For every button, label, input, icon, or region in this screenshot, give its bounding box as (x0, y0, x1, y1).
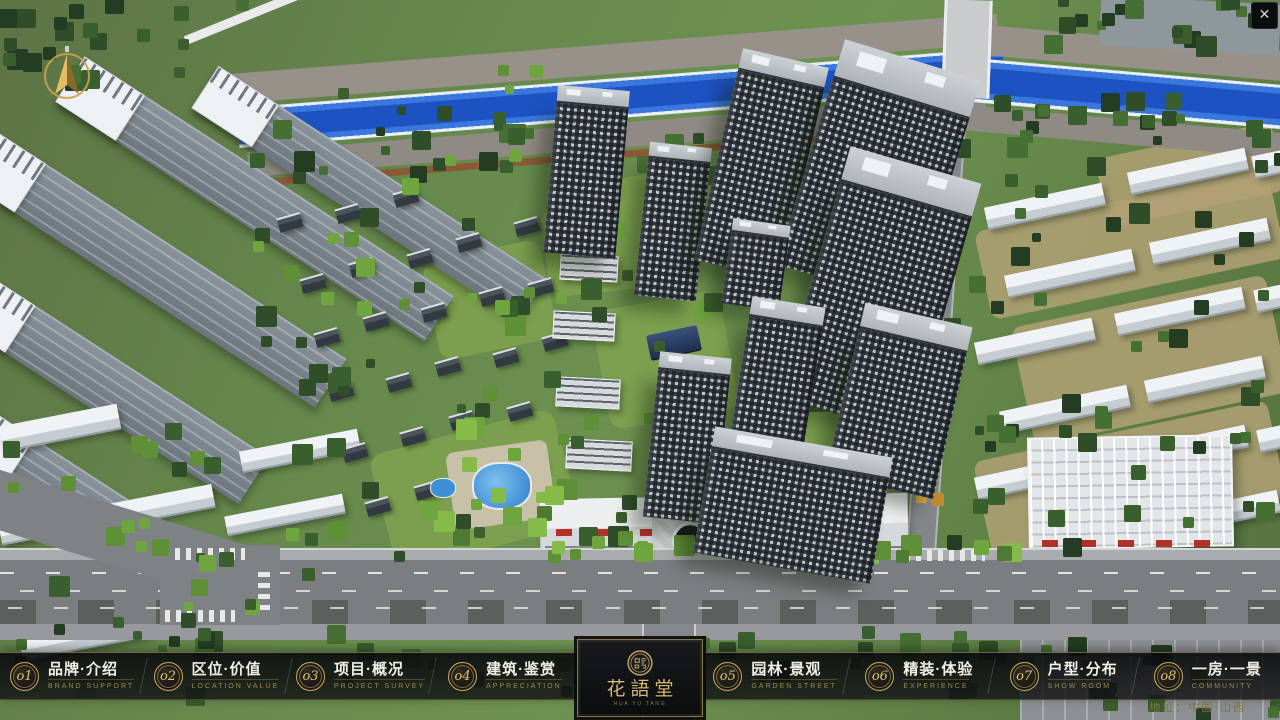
awning (598, 529, 614, 536)
awning (1194, 540, 1210, 547)
nav-label-en: BRAND SUPPORT (48, 679, 134, 691)
mid-rise (552, 310, 615, 341)
nav-group-right: o5 园林·景观 GARDEN STREET o6 精装·体验 EXPERIEN… (703, 653, 1280, 699)
address-text: 地址：中国·山西 (1149, 699, 1246, 715)
nav-label-en: LOCATION VALUE (192, 679, 280, 691)
nav-label-en: SHOW ROOM (1048, 679, 1112, 691)
nav-badge-icon: o5 (713, 662, 742, 691)
courtyard-house (513, 216, 540, 237)
tree-cluster (0, 430, 1, 431)
mid-rise (565, 438, 632, 471)
logo-subtitle: HUA YU TANG (614, 701, 667, 706)
nav-label-zh: 建筑·鉴赏 (486, 661, 556, 678)
pool (472, 462, 532, 510)
logo-panel[interactable]: 花語堂 HUA YU TANG (577, 639, 703, 717)
nav-badge-icon: o3 (296, 662, 325, 691)
nav-label-en: GARDEN STREET (751, 679, 837, 691)
courtyard-house (434, 356, 461, 377)
nav-label-zh: 户型·分布 (1048, 661, 1118, 678)
tree-cluster (0, 0, 1, 1)
low-rise-slab (0, 404, 121, 452)
awning (556, 529, 572, 536)
awning (1156, 540, 1172, 547)
tree-cluster (255, 195, 256, 196)
tree-cluster (0, 628, 1, 629)
nav-label-en: EXPERIENCE (903, 679, 968, 691)
courtyard-house (313, 327, 340, 348)
nav-label: 精装·体验 EXPERIENCE (903, 661, 973, 691)
nav-badge-icon: o1 (10, 662, 39, 691)
tower (634, 142, 712, 302)
nav-label: 一房·一景 COMMUNITY (1192, 661, 1262, 691)
nav-label-en: PROJECT SURVEY (334, 679, 425, 691)
pool (430, 478, 456, 498)
tree-cluster (995, 100, 996, 101)
courtyard-house (327, 381, 354, 402)
nav-label-zh: 品牌·介绍 (48, 661, 118, 678)
crosswalk (165, 610, 235, 622)
nav-label: 建筑·鉴赏 APPRECIATION (486, 661, 562, 691)
mid-rise (555, 376, 620, 409)
crosswalk (905, 550, 985, 561)
nav-item-architecture[interactable]: o4 建筑·鉴赏 APPRECIATION (433, 653, 577, 699)
nav-label: 园林·景观 GARDEN STREET (751, 661, 837, 691)
nav-badge-icon: o7 (1010, 662, 1039, 691)
courtyard-house (334, 203, 361, 224)
tree-cluster (1015, 645, 1016, 646)
nav-group-left: o1 品牌·介绍 BRAND SUPPORT o2 区位·价值 LOCATION… (0, 653, 577, 699)
tree-cluster (545, 540, 546, 541)
nav-label-en: COMMUNITY (1192, 679, 1253, 691)
nav-label-zh: 项目·概况 (334, 661, 404, 678)
nav-item-project[interactable]: o3 项目·概况 PROJECT SURVEY (289, 653, 433, 699)
nav-label: 户型·分布 SHOW ROOM (1048, 661, 1118, 691)
nav-item-interior[interactable]: o6 精装·体验 EXPERIENCE (847, 653, 991, 699)
nav-item-floorplan[interactable]: o7 户型·分布 SHOW ROOM (992, 653, 1136, 699)
nav-badge-icon: o2 (154, 662, 183, 691)
low-rise-slab (224, 494, 346, 537)
nav-badge-icon: o4 (448, 662, 477, 691)
tree-cluster (250, 125, 251, 126)
courtyard-house (492, 347, 519, 368)
awning (1080, 540, 1096, 547)
nav-label-zh: 区位·价值 (192, 661, 262, 678)
close-button[interactable]: ✕ (1251, 2, 1278, 29)
tree-cluster (1040, 0, 1041, 1)
crosswalk (258, 572, 270, 612)
compass-icon (38, 40, 96, 104)
nav-label-zh: 园林·景观 (751, 661, 821, 678)
nav-label: 品牌·介绍 BRAND SUPPORT (48, 661, 134, 691)
sales-office (1027, 434, 1234, 550)
perimeter-wall (184, 0, 326, 45)
tree-cluster (545, 195, 546, 196)
tower-facade (543, 103, 628, 259)
logo-seal-icon (626, 649, 654, 677)
nav-item-views[interactable]: o8 一房·一景 COMMUNITY (1136, 653, 1280, 699)
nav-badge-icon: o8 (1154, 662, 1183, 691)
crosswalk (175, 548, 245, 560)
awning (1118, 540, 1134, 547)
nav-label: 项目·概况 PROJECT SURVEY (334, 661, 425, 691)
nav-item-garden[interactable]: o5 园林·景观 GARDEN STREET (703, 653, 847, 699)
app-window: ✕ o1 品牌·介绍 BRAND SUPPORT o2 区位·价值 LOCATI… (0, 0, 1280, 720)
nav-label-zh: 一房·一景 (1192, 661, 1262, 678)
tower-facade (634, 158, 710, 302)
awning (1042, 540, 1058, 547)
sidewalk (0, 624, 1280, 640)
nav-label: 区位·价值 LOCATION VALUE (192, 661, 280, 691)
nav-item-brand[interactable]: o1 品牌·介绍 BRAND SUPPORT (0, 653, 144, 699)
courtyard-house (299, 273, 326, 294)
tree-cluster (425, 425, 426, 426)
nav-item-location[interactable]: o2 区位·价值 LOCATION VALUE (144, 653, 288, 699)
tree-cluster (340, 70, 341, 71)
logo-title: 花語堂 (606, 679, 678, 699)
scene (0, 0, 1280, 720)
nav-label-zh: 精装·体验 (903, 661, 973, 678)
tower (543, 85, 629, 259)
tree-cluster (620, 632, 621, 633)
nav-badge-icon: o6 (865, 662, 894, 691)
courtyard-house (362, 311, 389, 332)
courtyard-house (385, 372, 412, 393)
nav-label-en: APPRECIATION (486, 679, 562, 691)
